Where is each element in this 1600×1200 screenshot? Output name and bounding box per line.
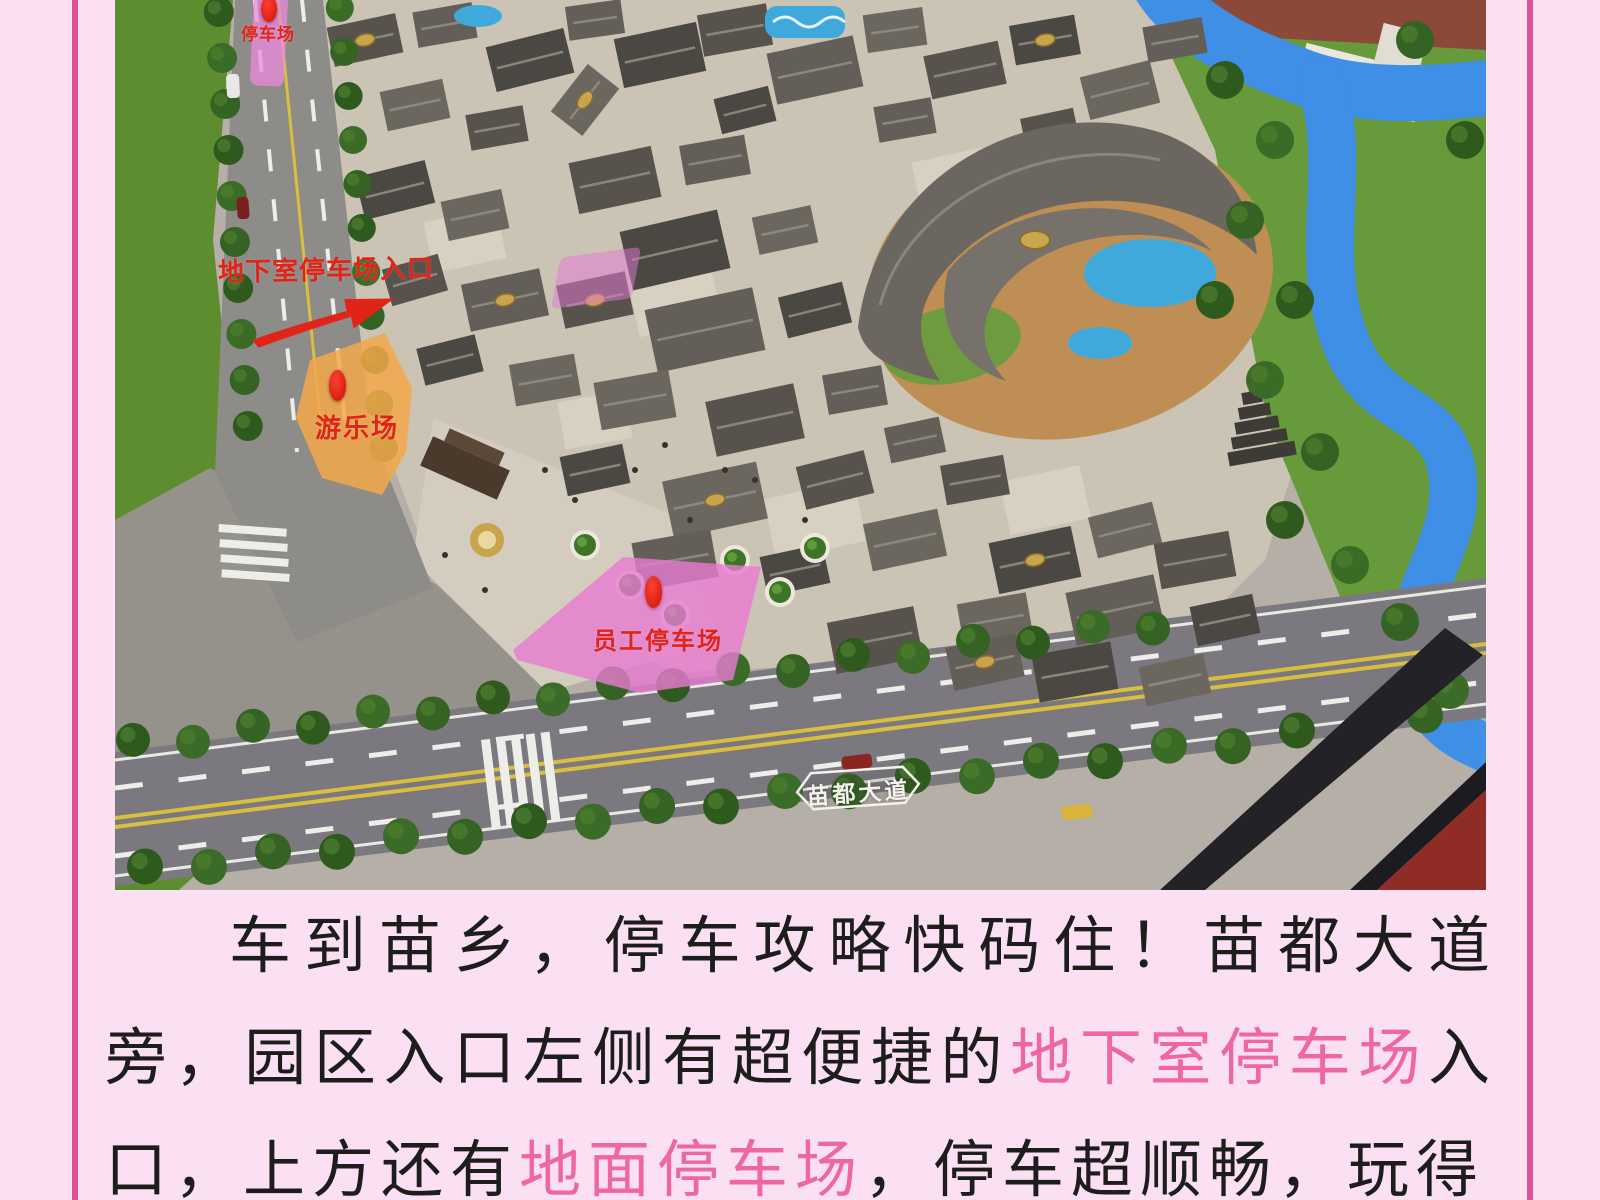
map-marker-icon (645, 576, 662, 608)
underground-entrance-label: 地下室停车场入口 (218, 248, 435, 289)
ground-parking-label: 停车场 (241, 20, 295, 45)
employee-parking-label: 员工停车场 (593, 621, 723, 656)
caption-segment: ，停车超顺畅，玩得 (864, 1136, 1485, 1200)
caption-highlight-underground-parking: 地下室停车场 (1010, 1024, 1428, 1093)
map-marker-icon (329, 370, 346, 401)
road-name-badge: 苗都大道 (794, 762, 923, 815)
caption-highlight-ground-parking: 地面停车场 (519, 1136, 864, 1200)
caption-text: 车到苗乡，停车攻略快码住！苗都大道旁，园区入口左侧有超便捷的地下室停车场入口，上… (105, 891, 1497, 1200)
right-border-line (1527, 0, 1533, 1200)
playground-label: 游乐场 (315, 408, 399, 445)
left-border-line (72, 0, 78, 1200)
post-page: 停车场 地下室停车场入口 游乐场 员工停车场 苗都大道 车到苗乡，停车攻略 (0, 0, 1600, 1200)
site-model-photo: 停车场 地下室停车场入口 游乐场 员工停车场 苗都大道 (115, 0, 1486, 890)
